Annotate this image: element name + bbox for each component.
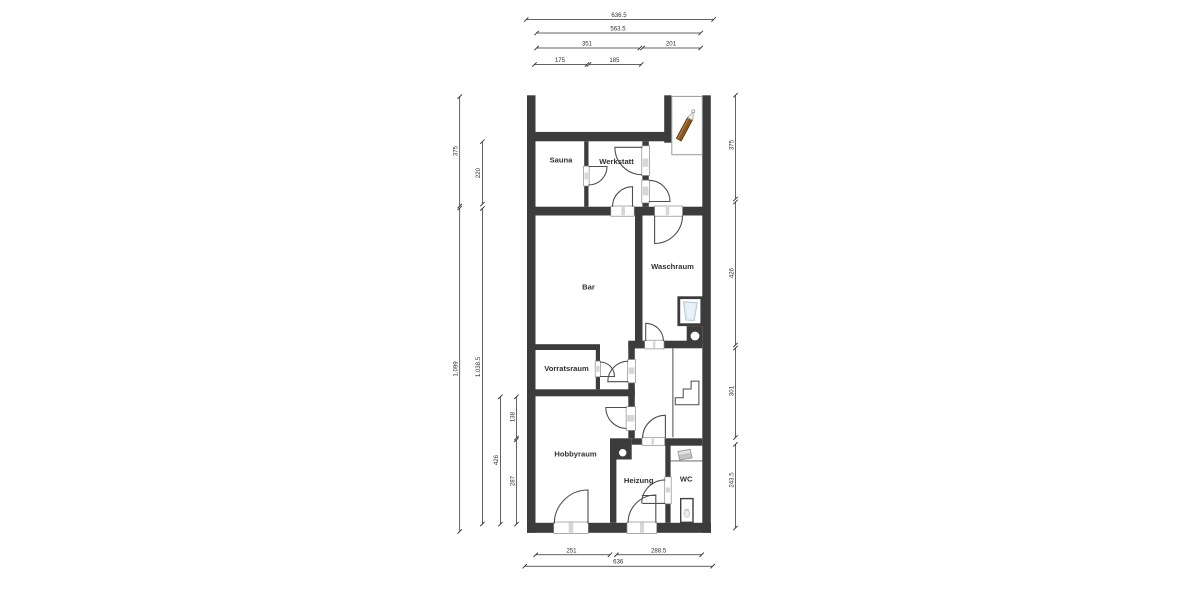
svg-text:220: 220 xyxy=(475,167,482,178)
svg-text:1.038.5: 1.038.5 xyxy=(475,356,482,377)
svg-text:201: 201 xyxy=(666,41,677,48)
svg-text:251: 251 xyxy=(566,547,577,554)
svg-text:Werkstatt: Werkstatt xyxy=(599,157,634,166)
svg-text:287: 287 xyxy=(509,475,516,486)
svg-text:Sauna: Sauna xyxy=(550,156,574,165)
svg-text:636.5: 636.5 xyxy=(611,12,627,19)
svg-text:375: 375 xyxy=(728,139,735,150)
svg-text:636: 636 xyxy=(613,559,624,566)
svg-text:426: 426 xyxy=(493,454,500,465)
svg-text:301: 301 xyxy=(728,385,735,396)
svg-text:138: 138 xyxy=(509,411,516,422)
svg-text:375: 375 xyxy=(453,145,460,156)
svg-text:Hobbyraum: Hobbyraum xyxy=(554,450,596,459)
svg-text:Heizung: Heizung xyxy=(624,476,654,485)
svg-text:175: 175 xyxy=(555,57,566,64)
svg-text:1.099: 1.099 xyxy=(453,361,460,377)
svg-text:185: 185 xyxy=(609,57,620,64)
svg-text:563.5: 563.5 xyxy=(610,26,626,33)
svg-text:Bar: Bar xyxy=(582,283,595,292)
svg-text:WC: WC xyxy=(680,475,693,484)
svg-text:351: 351 xyxy=(582,41,593,48)
svg-text:288.5: 288.5 xyxy=(651,547,667,554)
svg-text:426: 426 xyxy=(728,267,735,278)
svg-text:Vorratsraum: Vorratsraum xyxy=(544,364,589,373)
svg-text:243.5: 243.5 xyxy=(728,472,735,488)
svg-text:Waschraum: Waschraum xyxy=(651,262,694,271)
